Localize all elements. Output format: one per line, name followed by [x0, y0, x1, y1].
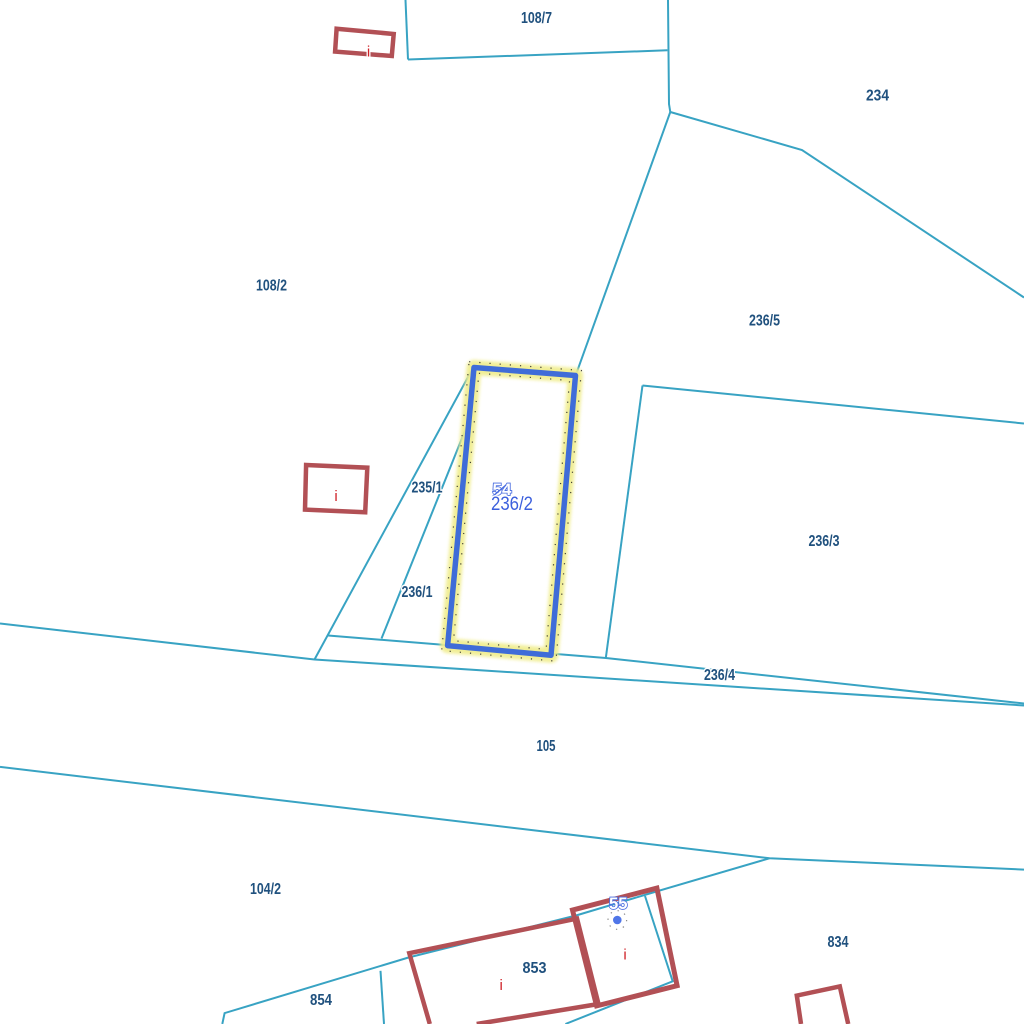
svg-text:236/3: 236/3: [809, 533, 840, 550]
svg-text:236/5: 236/5: [749, 313, 780, 330]
svg-text:236/2: 236/2: [491, 494, 533, 515]
svg-text:105: 105: [537, 738, 556, 755]
svg-text:i: i: [367, 44, 370, 61]
svg-text:853: 853: [523, 960, 547, 977]
svg-text:834: 834: [828, 934, 849, 951]
svg-text:854: 854: [310, 992, 332, 1009]
svg-text:i: i: [500, 977, 503, 994]
svg-text:236/1: 236/1: [402, 584, 433, 601]
svg-text:104/2: 104/2: [250, 881, 281, 898]
svg-text:108/2: 108/2: [256, 278, 287, 295]
svg-text:i: i: [334, 488, 337, 505]
svg-text:108/7: 108/7: [521, 10, 552, 27]
svg-text:235/1: 235/1: [412, 480, 443, 497]
svg-text:234: 234: [866, 88, 889, 105]
svg-text:i: i: [623, 947, 626, 964]
svg-text:55: 55: [609, 894, 628, 913]
svg-text:236/4: 236/4: [704, 667, 735, 684]
